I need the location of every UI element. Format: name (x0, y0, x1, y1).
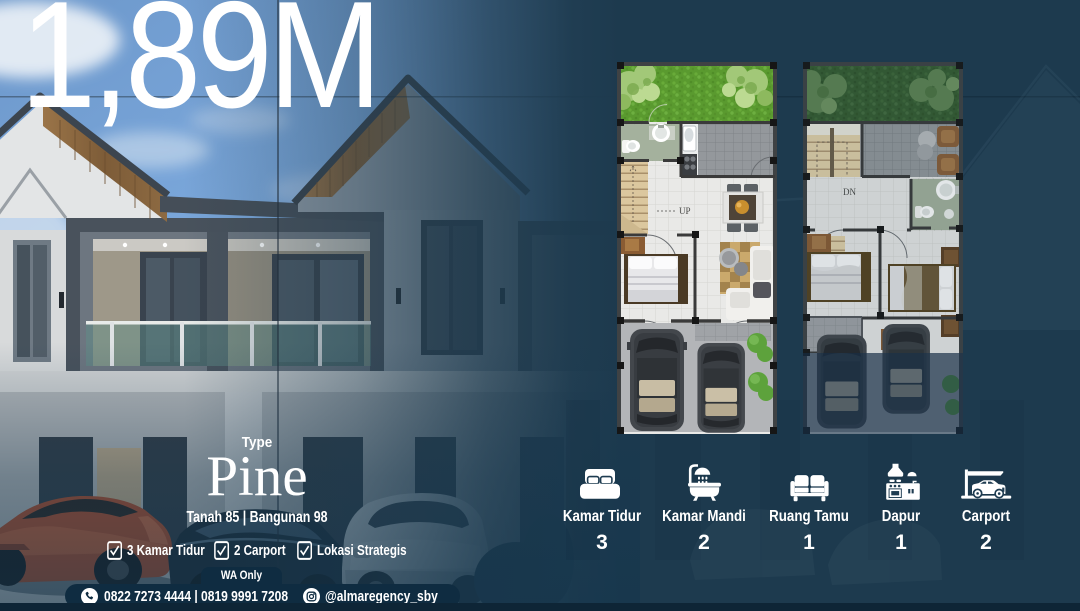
svg-text:UP: UP (679, 206, 691, 216)
